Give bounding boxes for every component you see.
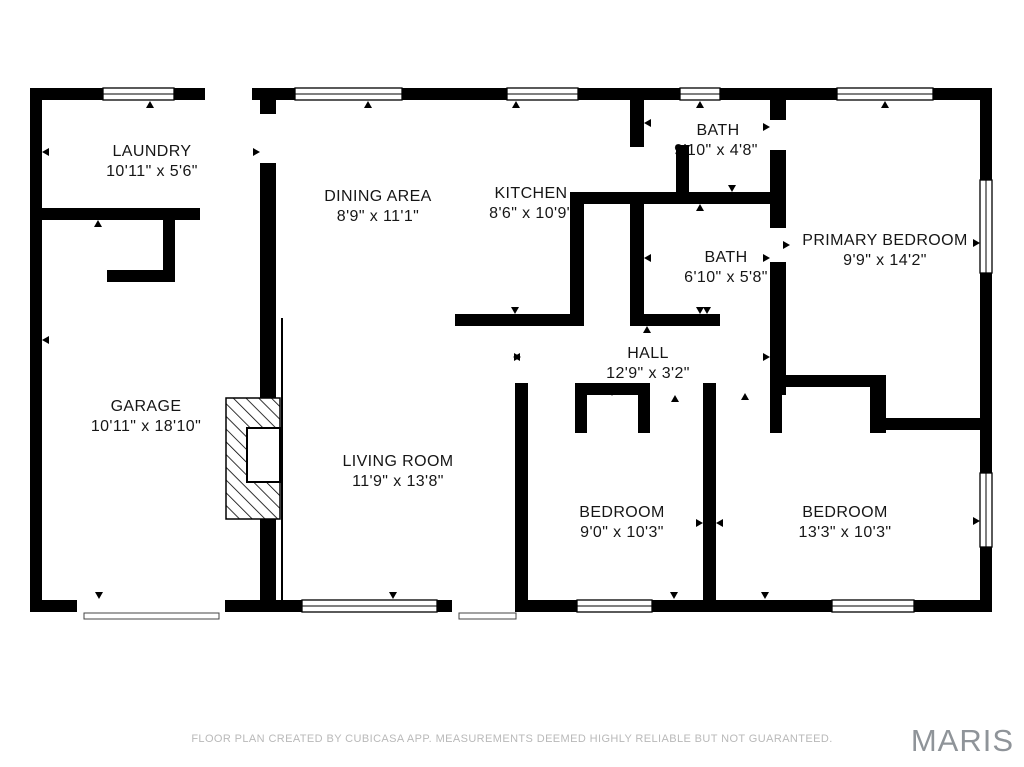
wall — [770, 375, 882, 387]
room-dims-dining: 8'9" x 11'1" — [337, 208, 419, 225]
room-dims-living: 11'9" x 13'8" — [352, 473, 444, 490]
window — [507, 88, 578, 100]
window — [837, 88, 933, 100]
wall — [630, 100, 644, 147]
room-dims-kitchen: 8'6" x 10'9" — [489, 205, 573, 222]
room-label-bedroom-1: BEDROOM — [579, 504, 664, 521]
disclaimer-text: FLOOR PLAN CREATED BY CUBICASA APP. MEAS… — [0, 733, 1024, 745]
room-label-laundry: LAUNDRY — [113, 143, 192, 160]
room-label-bath-1: BATH — [696, 122, 739, 139]
room-label-living: LIVING ROOM — [342, 453, 453, 470]
wall — [281, 318, 283, 600]
room-label-bath-2: BATH — [704, 249, 747, 266]
wall — [260, 88, 276, 114]
wall — [570, 192, 584, 326]
window — [980, 473, 992, 547]
wall — [260, 517, 276, 612]
wall — [878, 418, 992, 430]
patio-door-line — [459, 613, 516, 619]
wall — [770, 150, 786, 228]
fireplace-firebox — [247, 428, 280, 482]
window — [577, 600, 652, 612]
window — [832, 600, 914, 612]
wall — [770, 387, 782, 433]
room-label-bedroom-2: BEDROOM — [802, 504, 887, 521]
maris-watermark: MARIS — [911, 723, 1014, 759]
fireplace — [226, 398, 280, 519]
room-dims-bath-2: 6'10" x 5'8" — [684, 269, 768, 286]
room-dims-bedroom-1: 9'0" x 10'3" — [580, 524, 664, 541]
room-label-dining: DINING AREA — [324, 188, 432, 205]
room-label-hall: HALL — [627, 345, 669, 362]
garage-door-line — [84, 613, 219, 619]
floor-plan: LAUNDRY 10'11" x 5'6" DINING AREA 8'9" x… — [0, 0, 1024, 767]
window — [295, 88, 402, 100]
thresholds — [84, 613, 516, 619]
wall — [455, 314, 582, 326]
window — [980, 180, 992, 273]
wall — [107, 270, 175, 282]
room-label-garage: GARAGE — [111, 398, 182, 415]
wall — [770, 98, 786, 120]
floor-plan-page: LAUNDRY 10'11" x 5'6" DINING AREA 8'9" x… — [0, 0, 1024, 767]
window — [680, 88, 720, 100]
room-label-primary: PRIMARY BEDROOM — [802, 232, 967, 249]
room-dims-bedroom-2: 13'3" x 10'3" — [799, 524, 892, 541]
wall — [676, 145, 689, 192]
room-label-kitchen: KITCHEN — [494, 185, 567, 202]
wall — [630, 192, 644, 326]
wall — [638, 383, 650, 433]
room-dims-garage: 10'11" x 18'10" — [91, 418, 201, 435]
room-labels: LAUNDRY 10'11" x 5'6" DINING AREA 8'9" x… — [91, 122, 968, 541]
wall — [578, 192, 778, 204]
wall — [30, 88, 42, 612]
wall — [703, 383, 716, 612]
window — [103, 88, 174, 100]
garage-door-opening — [77, 599, 225, 613]
room-dims-hall: 12'9" x 3'2" — [606, 365, 690, 382]
patio-opening — [452, 599, 515, 613]
wall — [260, 163, 276, 398]
wall — [515, 383, 528, 612]
room-dims-laundry: 10'11" x 5'6" — [106, 163, 198, 180]
entry-opening — [205, 87, 252, 101]
room-dims-primary: 9'9" x 14'2" — [843, 252, 927, 269]
window — [302, 600, 437, 612]
wall — [575, 383, 587, 433]
